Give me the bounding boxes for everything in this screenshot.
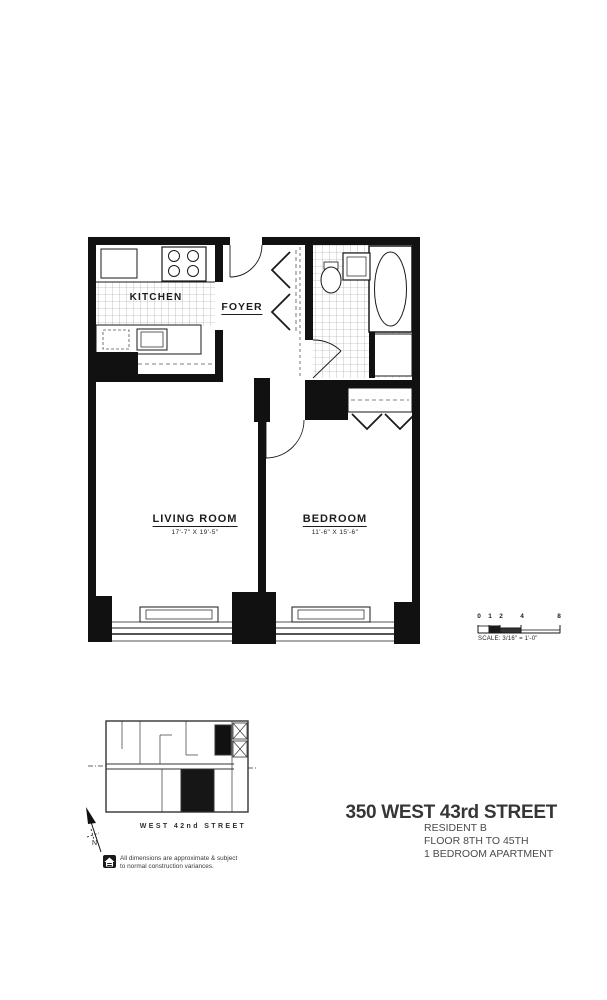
bedroom-dimensions: 11'-6" X 15'-6": [312, 529, 359, 536]
stove: [162, 247, 206, 281]
living-room-dimensions: 17'-7" X 19'-5": [171, 529, 218, 536]
resident-label: RESIDENT B: [424, 822, 487, 835]
foyer-closet-door: [272, 252, 290, 288]
kitchen-room-label: KITCHEN: [130, 292, 183, 303]
scale-bar-graphic: [478, 625, 560, 633]
foyer-room-label: FOYER: [221, 301, 262, 315]
elevator-core: [215, 725, 231, 755]
toilet: [321, 267, 341, 293]
bedroom-closet-door: [352, 414, 382, 429]
bedroom-label: BEDROOM: [303, 513, 367, 527]
bathtub: [369, 246, 412, 332]
floor-plan-page: KITCHEN FOYER LIVING ROOM 17'-7" X 19'-5…: [0, 0, 607, 1000]
street-label: WEST 42nd STREET: [140, 823, 246, 830]
north-label: N: [92, 840, 97, 847]
linen-closet: [374, 334, 412, 376]
living-room-label: LIVING ROOM: [153, 513, 238, 527]
scale-tick-4: 4: [520, 613, 524, 620]
apartment-type-label: 1 BEDROOM APARTMENT: [424, 848, 553, 861]
refrigerator: [101, 249, 137, 278]
building-title: 350 WEST 43rd STREET: [345, 802, 557, 824]
bedroom-radiator: [292, 607, 370, 622]
disclaimer-line-1: All dimensions are approximate & subject: [120, 855, 237, 862]
scale-tick-1: 1: [488, 613, 492, 620]
floor-range-label: FLOOR 8TH TO 45TH: [424, 835, 529, 848]
scale-tick-0: 0: [477, 613, 481, 620]
unit-location-highlight: [181, 769, 214, 812]
key-plan-drawing: [88, 721, 258, 812]
equal-housing-logo-icon: [103, 855, 116, 868]
scale-note: SCALE: 3/16" = 1'-0": [478, 636, 538, 642]
disclaimer-line-2: to normal construction variances.: [120, 863, 214, 870]
scale-tick-8: 8: [557, 613, 561, 620]
living-room-radiator: [140, 607, 218, 622]
scale-tick-2: 2: [499, 613, 503, 620]
